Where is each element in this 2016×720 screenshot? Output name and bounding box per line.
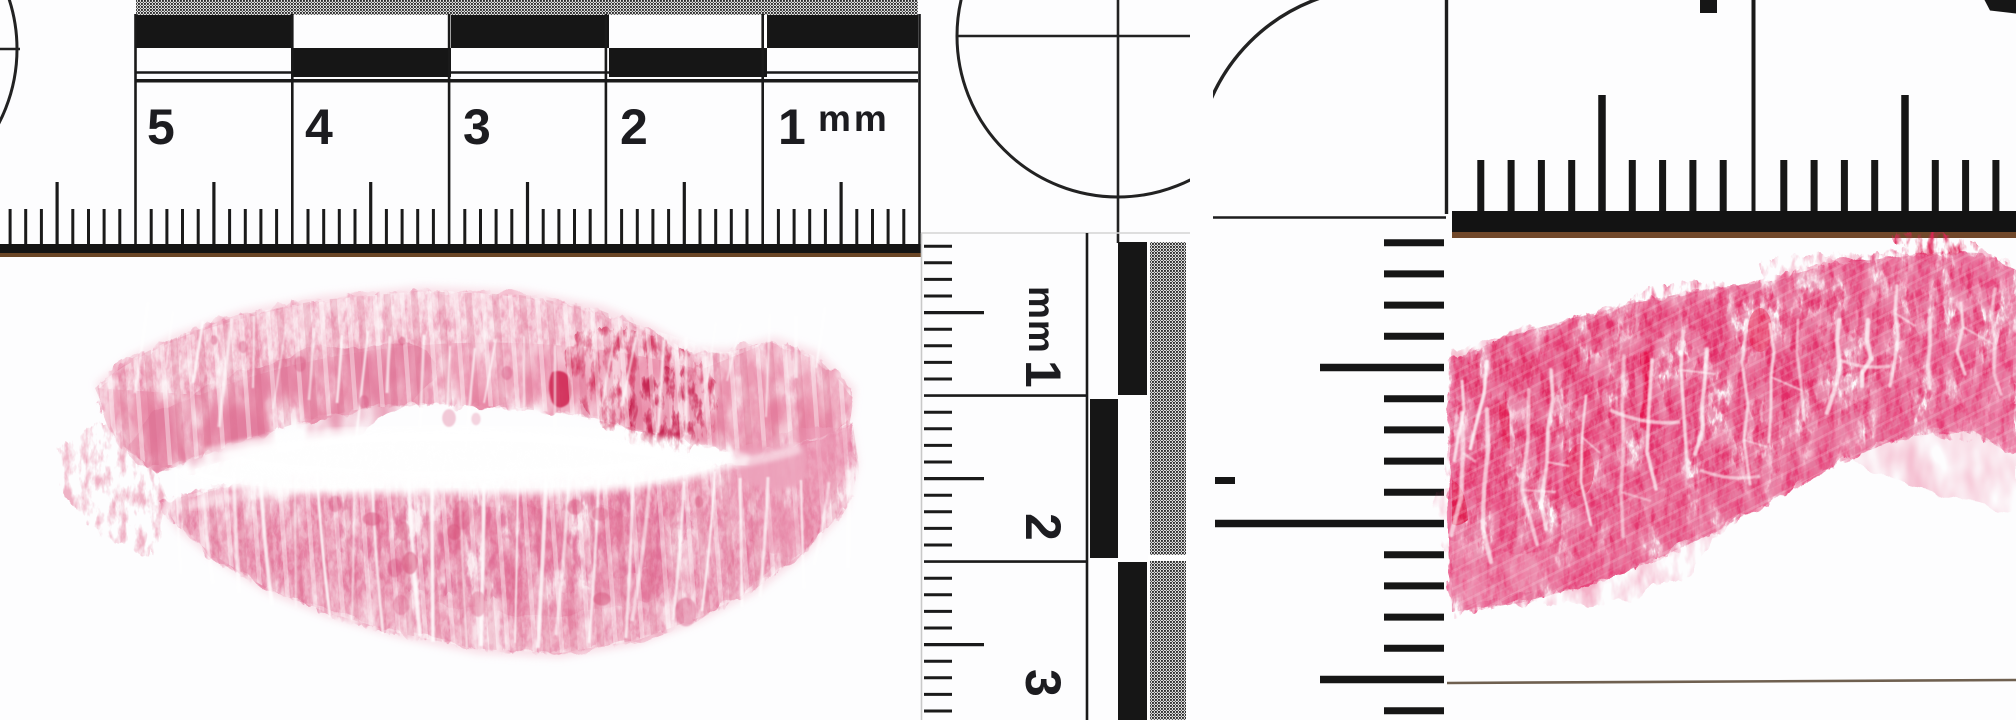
svg-text:mm: mm xyxy=(818,98,890,139)
svg-text:4: 4 xyxy=(305,99,333,155)
svg-text:1: 1 xyxy=(1015,360,1071,388)
svg-text:2: 2 xyxy=(620,99,648,155)
svg-text:3: 3 xyxy=(463,99,491,155)
svg-text:3: 3 xyxy=(1015,669,1071,697)
svg-text:1: 1 xyxy=(778,99,806,155)
svg-text:2: 2 xyxy=(1015,513,1071,541)
svg-text:mm: mm xyxy=(1021,286,1062,354)
svg-text:5: 5 xyxy=(147,99,175,155)
